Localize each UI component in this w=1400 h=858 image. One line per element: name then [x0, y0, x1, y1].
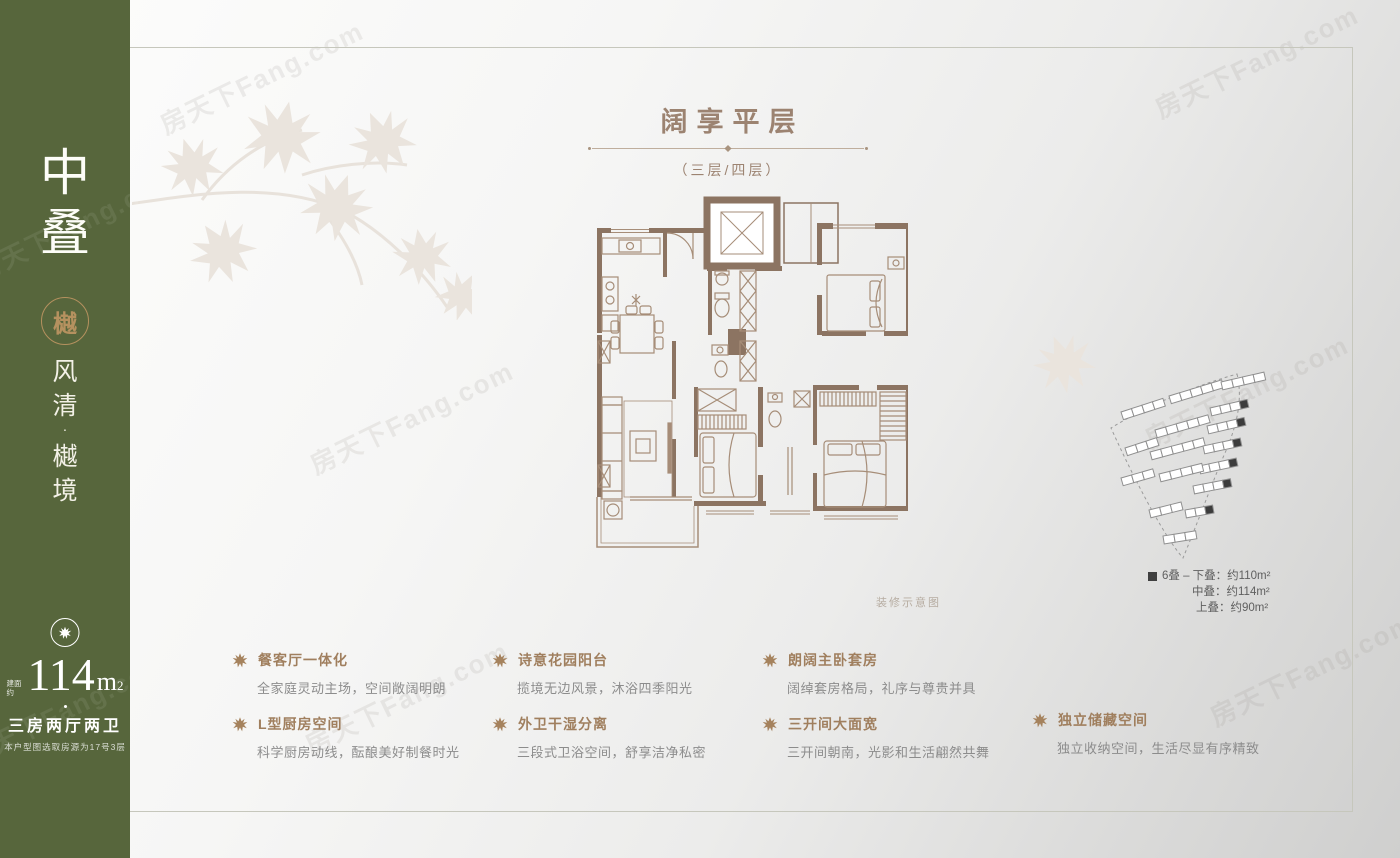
maple-leaf-decoration [1032, 330, 1096, 394]
legend-line: 上叠：约90m² [1148, 600, 1270, 616]
floor-plan-drawing [572, 195, 908, 557]
legend-marker-icon [1148, 572, 1157, 581]
watermark: 房天下Fang.com [153, 11, 369, 142]
feature-title: 外卫干湿分离 [518, 714, 608, 734]
maple-leaf-icon [232, 652, 248, 668]
feature-desc: 科学厨房动线，酝酿美好制餐时光 [257, 742, 487, 761]
watermark: 房天下Fang.com [303, 351, 519, 482]
product-name: 中 叠 [0, 146, 130, 260]
slogan-char: 风 [52, 360, 77, 385]
divider-dot [64, 705, 67, 708]
feature-desc: 阔绰套房格局，礼序与尊贵并具 [787, 678, 1017, 697]
feature-title: 独立储藏空间 [1058, 710, 1148, 730]
feature-desc: 全家庭灵动主场，空间敞阔明朗 [257, 678, 487, 697]
maple-leaf-icon [492, 716, 508, 732]
page-canvas: 房天下Fang.com 房天下Fang.com 房天下Fang.com 房天下F… [0, 0, 1400, 858]
leaf-circle-icon [51, 618, 80, 647]
feature-title: L型厨房空间 [258, 714, 343, 734]
area-prefix-label: 建面约 [6, 679, 25, 697]
legend-line: 中叠：约114m² [1148, 584, 1270, 600]
feature-desc: 独立收纳空间，生活尽显有序精致 [1057, 738, 1287, 757]
product-name-char: 中 [40, 146, 90, 200]
watermark: 房天下Fang.com [1148, 0, 1364, 126]
feature-title: 三开间大面宽 [788, 714, 878, 734]
maple-branch-decoration [132, 45, 472, 320]
feature-title: 诗意花园阳台 [518, 650, 608, 670]
sidebar: 房天下Fang.com 房天下Fang.com 中 叠 樾 风 清 · 樾 境 … [0, 0, 130, 858]
slogan-separator: · [63, 428, 68, 436]
maple-leaf-icon [1032, 712, 1048, 728]
area-legend: 6叠 – 下叠：约110m² 中叠：约114m² 上叠：约90m² [1148, 568, 1270, 616]
source-note: 本户型图选取房源为17号3层 [0, 741, 130, 753]
title-divider [592, 148, 864, 149]
maple-leaf-icon [762, 716, 778, 732]
slogan-char: 清 [52, 394, 77, 419]
page-title: 阔享平层 [560, 100, 896, 139]
page-subtitle: （三层/四层） [560, 160, 896, 180]
seal-icon: 樾 [41, 297, 89, 345]
area-block: 建面约 114 m 2 三房两厅两卫 本户型图选取房源为17号3层 [0, 652, 130, 753]
maple-leaf-icon [232, 716, 248, 732]
feature-item: 独立储藏空间 独立收纳空间，生活尽显有序精致 [1032, 710, 1287, 757]
maple-leaf-icon [762, 652, 778, 668]
feature-desc: 三段式卫浴空间，舒享洁净私密 [517, 742, 747, 761]
plan-header: 阔享平层 （三层/四层） [560, 100, 896, 180]
slogan-char: 樾 [52, 445, 77, 470]
area-value: 114 [27, 652, 94, 698]
plan-caption: 装修示意图 [876, 594, 941, 610]
feature-item: 三开间大面宽 三开间朝南，光影和生活翩然共舞 [762, 714, 1017, 761]
feature-desc: 揽境无边风景，沐浴四季阳光 [517, 678, 747, 697]
feature-item: L型厨房空间 科学厨房动线，酝酿美好制餐时光 [232, 714, 487, 761]
product-name-char: 叠 [40, 206, 90, 260]
area-superscript: 2 [117, 678, 124, 694]
area-unit: m [97, 667, 117, 697]
legend-line: 6叠 – 下叠：约110m² [1162, 568, 1270, 584]
project-slogan: 风 清 · 樾 境 [0, 360, 130, 504]
feature-desc: 三开间朝南，光影和生活翩然共舞 [787, 742, 1017, 761]
maple-leaf-icon [492, 652, 508, 668]
feature-item: 诗意花园阳台 揽境无边风景，沐浴四季阳光 [492, 650, 747, 697]
feature-title: 餐客厅一体化 [258, 650, 348, 670]
seal-character: 樾 [53, 304, 77, 339]
feature-item: 餐客厅一体化 全家庭灵动主场，空间敞阔明朗 [232, 650, 487, 697]
watermark: 房天下Fang.com [1138, 325, 1354, 456]
layout-label: 三房两厅两卫 [0, 712, 130, 736]
feature-item: 朗阔主卧套房 阔绰套房格局，礼序与尊贵并具 [762, 650, 1017, 697]
slogan-char: 境 [52, 479, 77, 504]
feature-item: 外卫干湿分离 三段式卫浴空间，舒享洁净私密 [492, 714, 747, 761]
feature-title: 朗阔主卧套房 [788, 650, 878, 670]
